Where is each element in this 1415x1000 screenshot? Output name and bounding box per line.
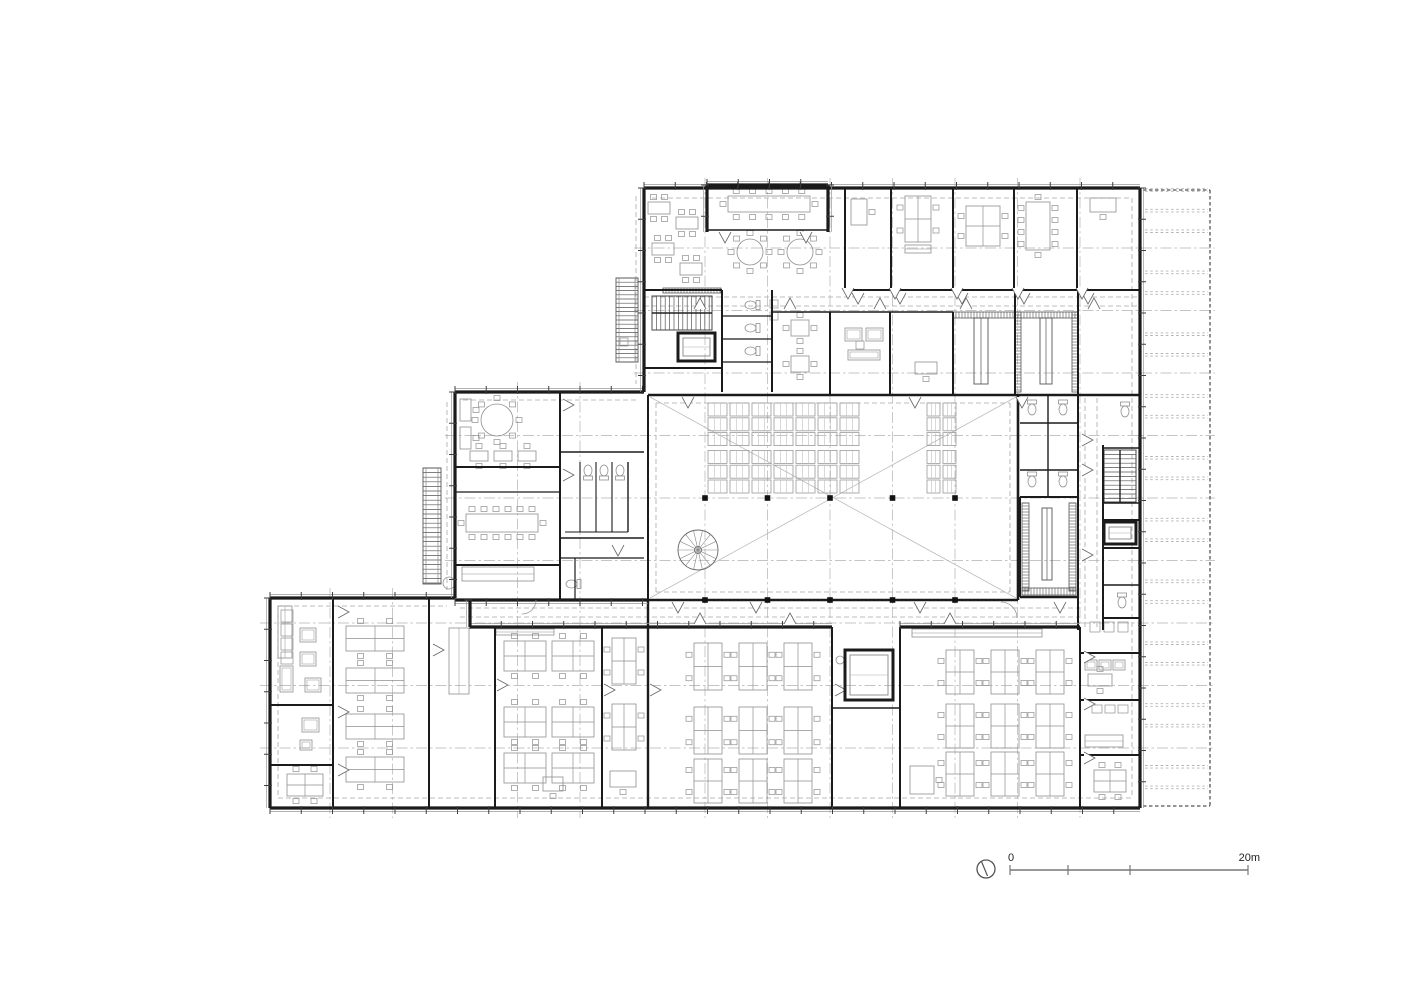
scale-label-20m: 20m <box>1239 852 1260 864</box>
skylight-grid <box>708 403 956 493</box>
pergola-canopy <box>1143 189 1210 806</box>
floor-plan-page: 0 20m <box>0 0 1415 1000</box>
construction-guides <box>278 196 1140 798</box>
scale-bar <box>977 860 1248 878</box>
elevator-cores <box>678 333 1136 700</box>
floor-plan-canvas: 0 20m <box>0 0 1415 1000</box>
scale-label-zero: 0 <box>1008 852 1014 864</box>
stairs-hatch <box>423 278 1136 595</box>
